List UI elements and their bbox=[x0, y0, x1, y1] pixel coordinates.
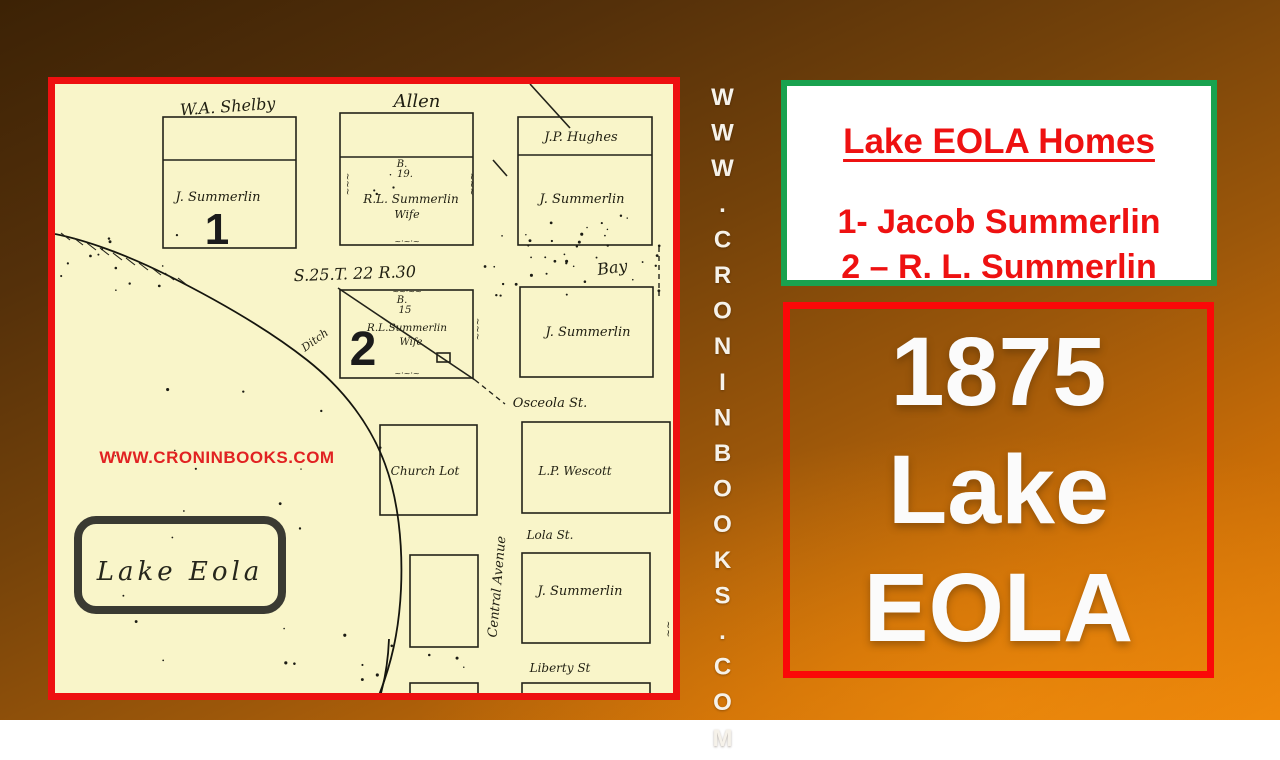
title-line-eola: EOLA bbox=[864, 549, 1133, 667]
svg-text:Lola St.: Lola St. bbox=[526, 528, 574, 542]
svg-text:~~~: ~~~ bbox=[472, 318, 482, 341]
svg-text:R.L.Summerlin: R.L.Summerlin bbox=[366, 322, 447, 334]
slide-background: W.A. ShelbyAllenJ.P. HughesJ. Summerlin1… bbox=[0, 0, 1280, 720]
legend-box: Lake EOLA Homes 1- Jacob Summerlin 2 – R… bbox=[781, 80, 1217, 286]
map-panel: W.A. ShelbyAllenJ.P. HughesJ. Summerlin1… bbox=[48, 77, 680, 700]
svg-text:W.A. Shelby: W.A. Shelby bbox=[179, 94, 277, 120]
svg-text:Liberty St: Liberty St bbox=[529, 661, 591, 675]
plat-map-svg: W.A. ShelbyAllenJ.P. HughesJ. Summerlin1… bbox=[55, 84, 673, 693]
svg-text:J. Summerlin: J. Summerlin bbox=[173, 190, 261, 205]
svg-text:WWW.CRONINBOOKS.COM: WWW.CRONINBOOKS.COM bbox=[99, 448, 334, 467]
svg-text:J. Summerlin: J. Summerlin bbox=[535, 584, 623, 599]
svg-text:Allen: Allen bbox=[392, 91, 441, 112]
svg-text:1: 1 bbox=[205, 205, 229, 254]
svg-text:Church Lot: Church Lot bbox=[391, 464, 460, 478]
svg-text:Bay: Bay bbox=[595, 256, 630, 279]
svg-text:Ditch: Ditch bbox=[298, 326, 331, 355]
svg-text:J. Summerlin: J. Summerlin bbox=[543, 325, 631, 340]
svg-text:~~~: ~~~ bbox=[466, 173, 476, 196]
svg-text:Lake Eola: Lake Eola bbox=[96, 557, 264, 587]
svg-text:S.25.T. 22 R.30: S.25.T. 22 R.30 bbox=[293, 262, 416, 285]
svg-text:Central Avenue: Central Avenue bbox=[486, 535, 510, 638]
svg-text:15: 15 bbox=[399, 305, 412, 316]
svg-text:~~: ~~ bbox=[662, 621, 673, 638]
title-line-year: 1875 bbox=[891, 313, 1107, 431]
svg-text:Wife: Wife bbox=[394, 208, 420, 221]
svg-text:J.P. Hughes: J.P. Hughes bbox=[541, 130, 618, 145]
svg-text:R.L. Summerlin: R.L. Summerlin bbox=[362, 192, 458, 206]
svg-text:Wife: Wife bbox=[400, 337, 423, 348]
svg-text:~·~·~: ~·~·~ bbox=[394, 369, 419, 378]
svg-text:J. Summerlin: J. Summerlin bbox=[537, 192, 625, 207]
legend-title: Lake EOLA Homes bbox=[787, 122, 1211, 162]
legend-item: 2 – R. L. Summerlin bbox=[787, 245, 1211, 290]
title-box: 1875 Lake EOLA bbox=[783, 302, 1214, 678]
svg-text:Osceola St.: Osceola St. bbox=[513, 396, 587, 411]
svg-text:~~~: ~~~ bbox=[342, 173, 352, 196]
svg-text:~·~·~: ~·~·~ bbox=[394, 237, 419, 246]
title-line-lake: Lake bbox=[888, 431, 1109, 549]
svg-text:19.: 19. bbox=[397, 169, 413, 180]
svg-text:L.P. Wescott: L.P. Wescott bbox=[537, 464, 611, 478]
legend-items: 1- Jacob Summerlin 2 – R. L. Summerlin bbox=[787, 200, 1211, 290]
vertical-watermark-url: WWW.CRONINBOOKS.COM bbox=[708, 84, 748, 716]
svg-text:~~·~~: ~~·~~ bbox=[392, 287, 421, 296]
legend-item: 1- Jacob Summerlin bbox=[787, 200, 1211, 245]
